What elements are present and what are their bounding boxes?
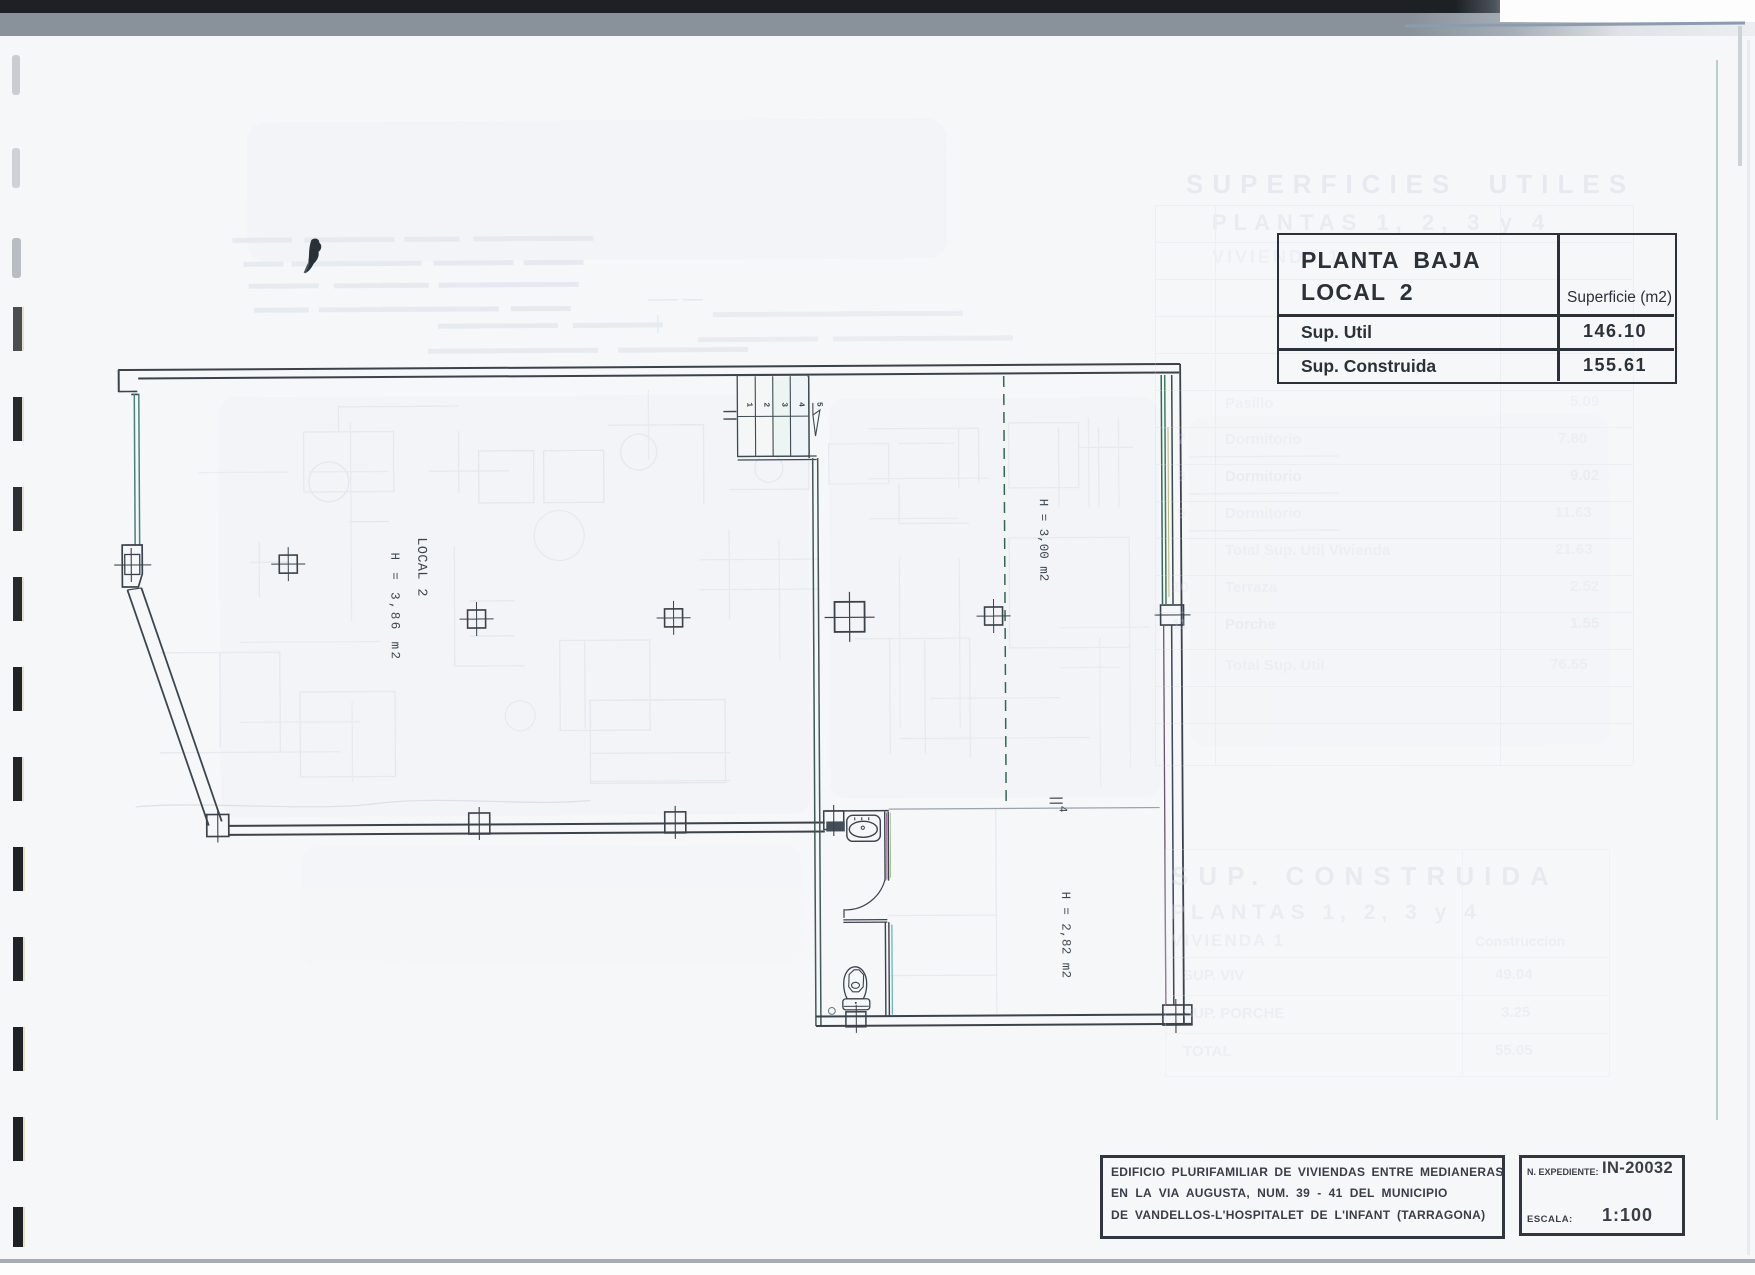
svg-text:H = 3,86 m2: H = 3,86 m2 bbox=[387, 552, 402, 661]
svg-text:2: 2 bbox=[761, 402, 770, 407]
svg-text:LOCAL 2: LOCAL 2 bbox=[413, 537, 428, 597]
svg-text:5: 5 bbox=[814, 402, 823, 407]
svg-text:H = 2,82 m2: H = 2,82 m2 bbox=[1058, 892, 1073, 979]
svg-text:1: 1 bbox=[744, 402, 753, 407]
svg-text:4: 4 bbox=[796, 402, 805, 407]
svg-text:H = 3,00 m2: H = 3,00 m2 bbox=[1036, 499, 1050, 582]
svg-text:3: 3 bbox=[779, 402, 788, 407]
svg-text:4: 4 bbox=[1056, 806, 1069, 813]
